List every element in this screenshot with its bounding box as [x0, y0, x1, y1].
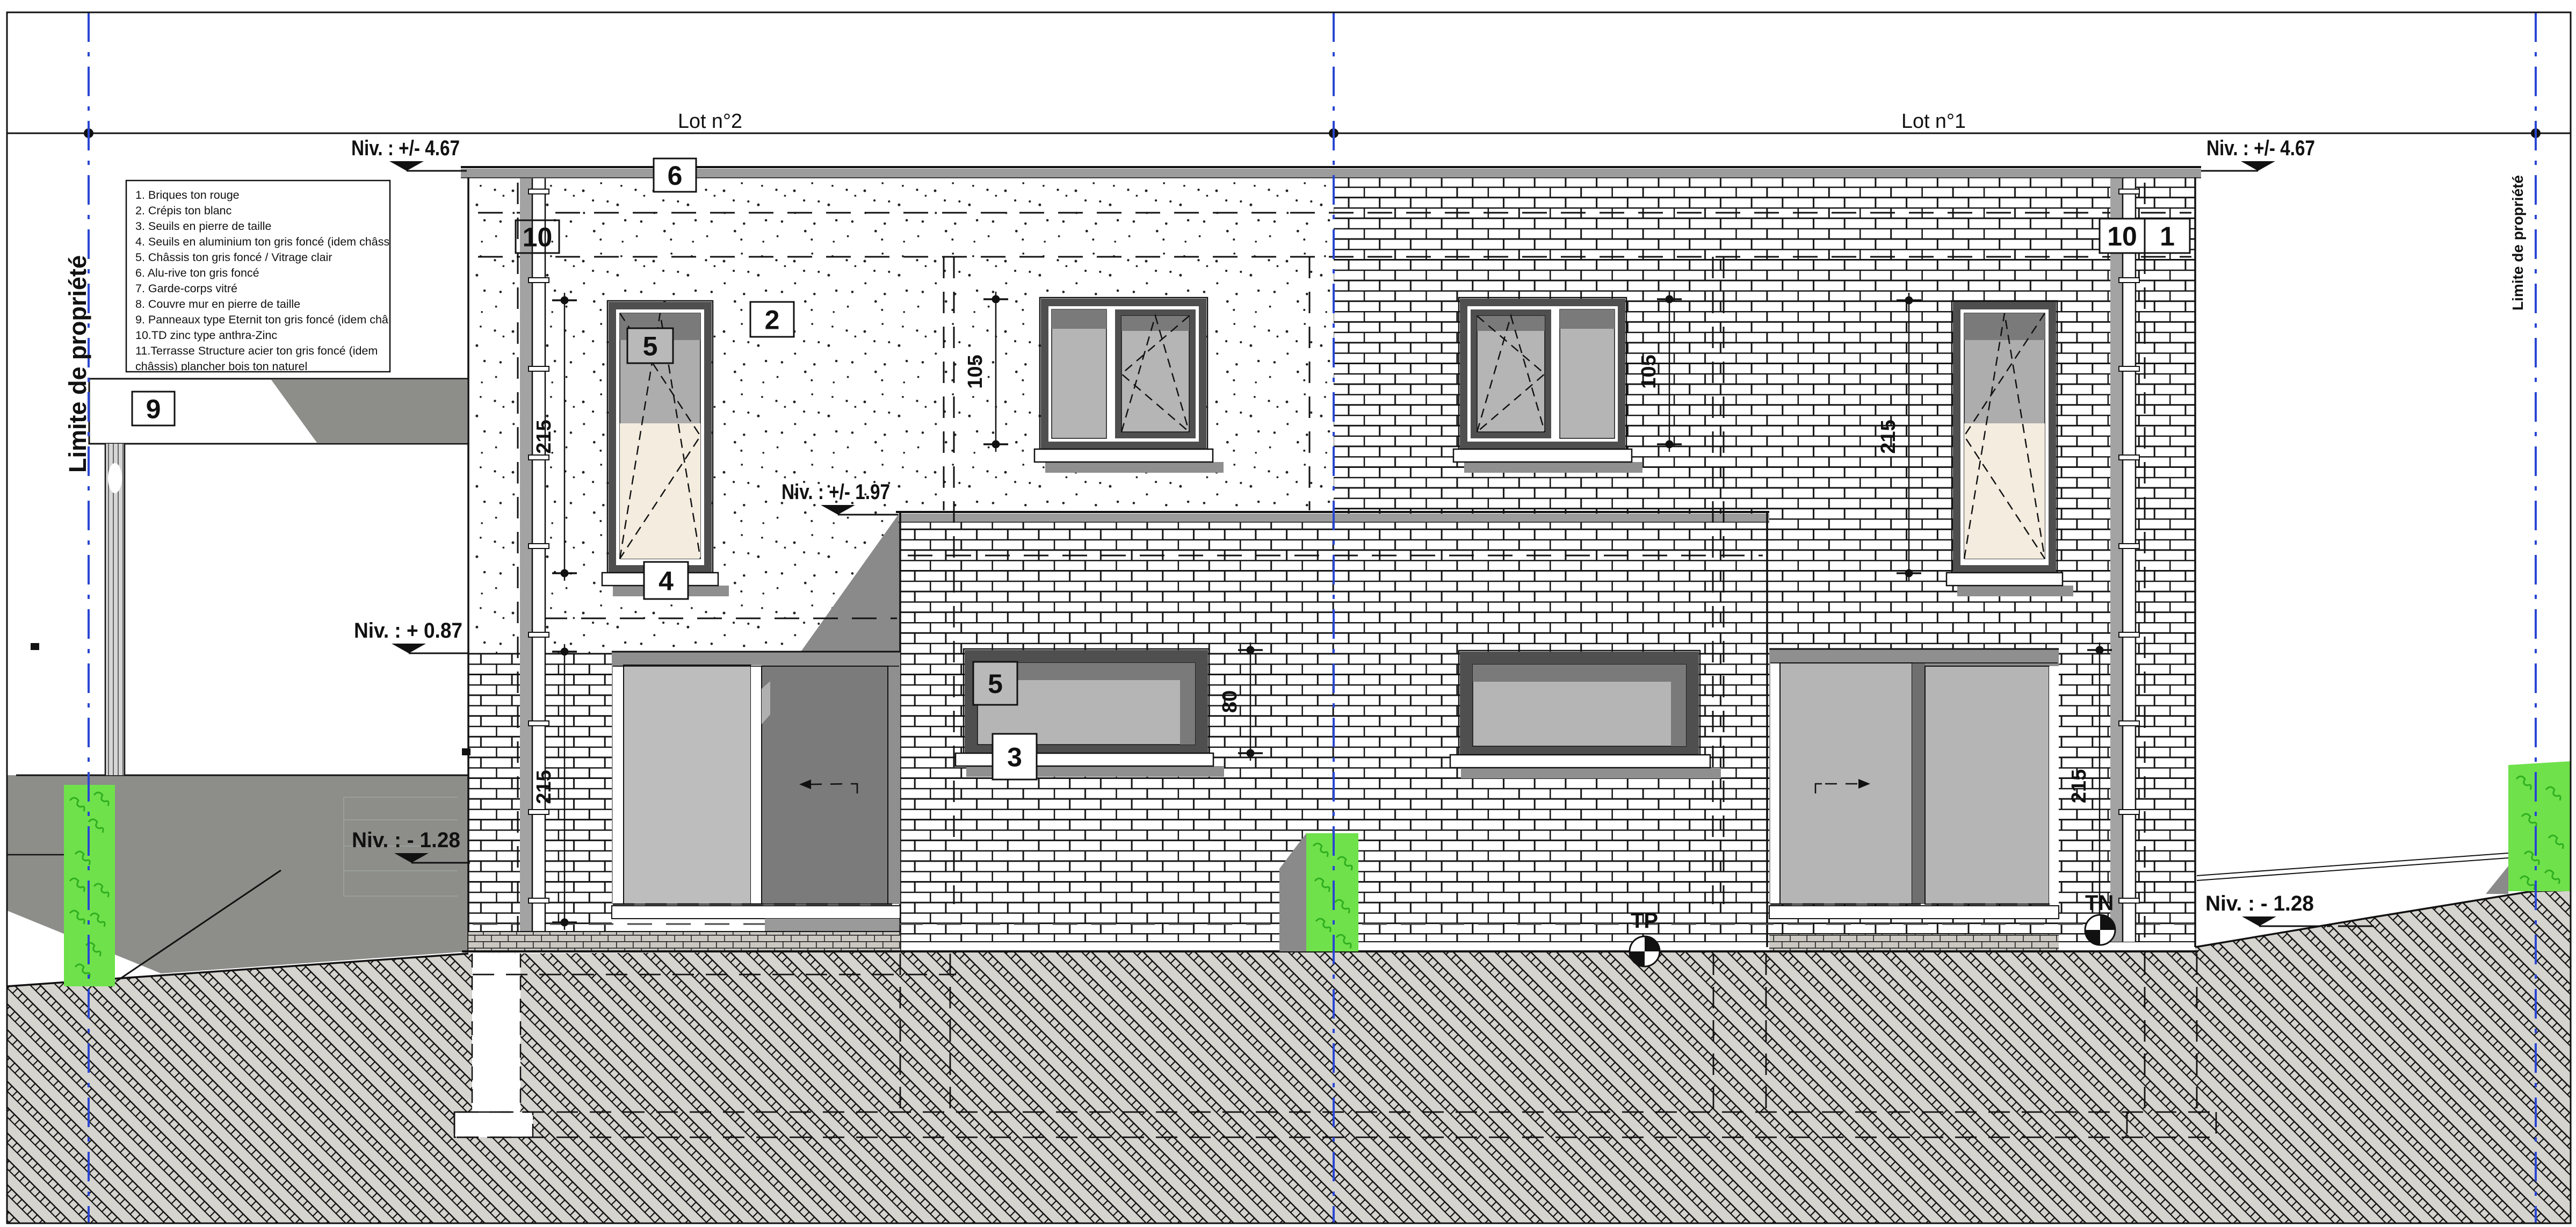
- svg-text:Niv. : +/- 4.67: Niv. : +/- 4.67: [2206, 136, 2315, 160]
- svg-text:9. Panneaux type Eternit ton g: 9. Panneaux type Eternit ton gris foncé …: [135, 313, 394, 326]
- svg-text:Lot n°1: Lot n°1: [1901, 110, 1966, 133]
- svg-text:1: 1: [2160, 221, 2175, 251]
- svg-text:2. Crépis ton blanc: 2. Crépis ton blanc: [135, 204, 232, 217]
- svg-text:215: 215: [2068, 769, 2090, 803]
- svg-text:TN: TN: [2085, 891, 2114, 915]
- svg-text:10.TD zinc type anthra-Zinc: 10.TD zinc type anthra-Zinc: [135, 329, 277, 342]
- svg-text:TP: TP: [1631, 909, 1658, 933]
- svg-text:215: 215: [533, 770, 555, 804]
- svg-text:Niv. : +/- 4.67: Niv. : +/- 4.67: [351, 136, 460, 160]
- svg-text:2: 2: [765, 305, 780, 335]
- svg-text:Lot n°2: Lot n°2: [678, 110, 742, 133]
- svg-text:215: 215: [533, 420, 555, 453]
- svg-text:215: 215: [1877, 420, 1900, 453]
- svg-text:105: 105: [1638, 355, 1660, 388]
- svg-text:7. Garde-corps vitré: 7. Garde-corps vitré: [135, 282, 237, 295]
- svg-text:80: 80: [1219, 690, 1241, 713]
- svg-text:Niv. : +/- 1.97: Niv. : +/- 1.97: [782, 480, 890, 504]
- svg-text:4. Seuils en aluminium ton gri: 4. Seuils en aluminium ton gris foncé (i…: [135, 235, 402, 248]
- svg-text:Niv. : - 1.28: Niv. : - 1.28: [2205, 892, 2314, 915]
- svg-text:10: 10: [523, 222, 553, 252]
- svg-text:10: 10: [2107, 221, 2137, 251]
- svg-text:Niv. : + 0.87: Niv. : + 0.87: [354, 619, 462, 643]
- svg-text:6: 6: [668, 161, 683, 191]
- svg-text:8. Couvre mur en pierre de tai: 8. Couvre mur en pierre de taille: [135, 298, 300, 311]
- svg-text:9: 9: [146, 394, 161, 424]
- svg-text:11.Terrasse Structure acier to: 11.Terrasse Structure acier ton gris fon…: [135, 344, 378, 357]
- svg-text:3: 3: [1007, 742, 1022, 773]
- svg-text:5: 5: [643, 331, 658, 362]
- svg-text:Limite de propriété: Limite de propriété: [64, 255, 91, 473]
- svg-text:Niv. : - 1.28: Niv. : - 1.28: [352, 828, 460, 852]
- svg-text:Limite de propriété: Limite de propriété: [2509, 175, 2526, 311]
- svg-text:105: 105: [964, 355, 987, 388]
- svg-text:6. Alu-rive ton gris foncé: 6. Alu-rive ton gris foncé: [135, 266, 259, 279]
- svg-text:5. Châssis ton gris foncé / Vi: 5. Châssis ton gris foncé / Vitrage clai…: [135, 251, 332, 264]
- svg-text:1. Briques ton rouge: 1. Briques ton rouge: [135, 189, 240, 201]
- svg-text:4: 4: [659, 566, 674, 596]
- svg-text:3. Seuils en pierre de taille: 3. Seuils en pierre de taille: [135, 220, 271, 233]
- svg-text:5: 5: [988, 669, 1003, 699]
